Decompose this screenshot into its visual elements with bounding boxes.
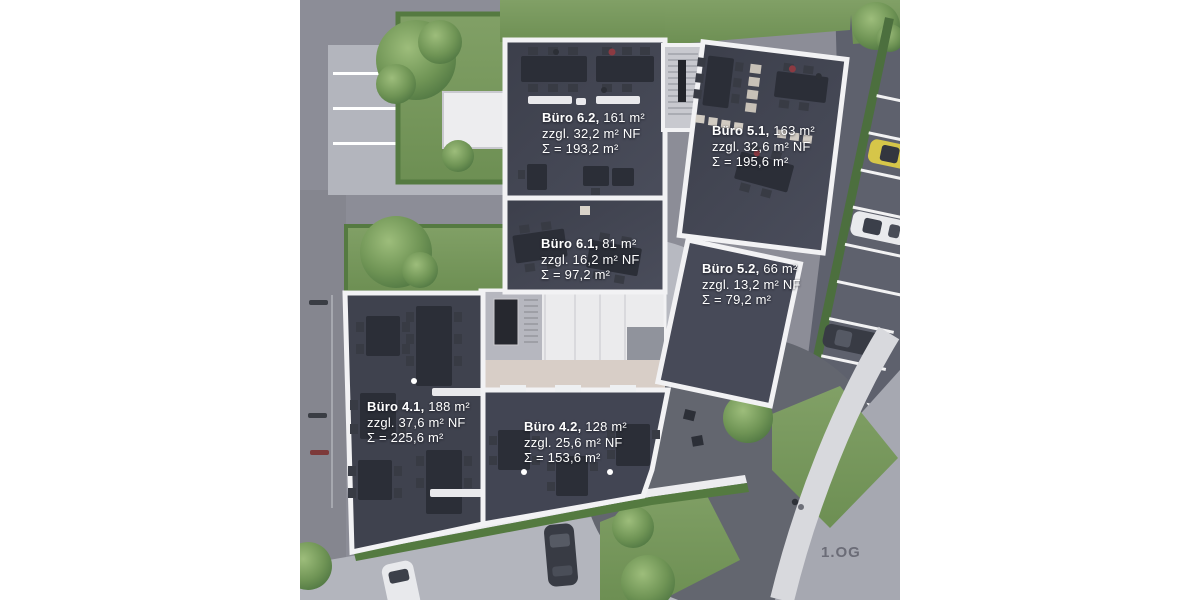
bench [691,435,704,447]
office-total: Σ = 193,2 m² [542,141,645,157]
office-addition: zzgl. 32,6 m² NF [712,139,815,155]
bicycle-icon [308,413,327,418]
office-name-area: Büro 4.2, 128 m² [524,419,627,435]
person-dot [553,49,559,55]
office-total: Σ = 153,6 m² [524,450,627,466]
office-addition: zzgl. 37,6 m² NF [367,415,470,431]
bicycle-icon [310,450,329,455]
office-addition: zzgl. 16,2 m² NF [541,252,640,268]
person-dot [792,499,798,505]
office-total: Σ = 97,2 m² [541,267,640,283]
lawn-upper-left [376,14,510,182]
skylight-dot [411,378,417,384]
office-name-area: Büro 4.1, 188 m² [367,399,470,415]
office-label-buero-4-1: Büro 4.1, 188 m² zzgl. 37,6 m² NF Σ = 22… [367,399,470,446]
car-dark [543,523,578,587]
office-addition: zzgl. 32,2 m² NF [542,126,645,142]
site-plan-scene [300,0,900,600]
shed-roof [443,92,509,148]
lawn-mid-left [346,216,508,292]
bush-icon [442,140,474,172]
office-label-buero-6-2: Büro 6.2, 161 m² zzgl. 32,2 m² NF Σ = 19… [542,110,645,157]
building-core [478,290,665,390]
office-label-buero-6-1: Büro 6.1, 81 m² zzgl. 16,2 m² NF Σ = 97,… [541,236,640,283]
office-name-area: Büro 6.1, 81 m² [541,236,640,252]
floor-plan-rendering: Büro 6.2, 161 m² zzgl. 32,2 m² NF Σ = 19… [0,0,1200,600]
bicycle-icon [309,300,328,305]
office-total: Σ = 225,6 m² [367,430,470,446]
office-label-buero-4-2: Büro 4.2, 128 m² zzgl. 25,6 m² NF Σ = 15… [524,419,627,466]
office-addition: zzgl. 25,6 m² NF [524,435,627,451]
floor-level-label: 1.OG [821,544,861,561]
office-total: Σ = 195,6 m² [712,154,815,170]
office-label-buero-5-2: Büro 5.2, 66 m² zzgl. 13,2 m² NF Σ = 79,… [702,261,801,308]
elevator-shaft [494,299,518,345]
skylight-dot [607,469,613,475]
office-label-buero-5-1: Büro 5.1, 163 m² zzgl. 32,6 m² NF Σ = 19… [712,123,815,170]
utility-room [627,327,664,360]
office-name-area: Büro 5.2, 66 m² [702,261,801,277]
person-dot [601,87,607,93]
bush-icon [612,506,654,548]
person-dot [798,504,804,510]
stair-rail [678,60,686,102]
skylight-square [580,206,590,215]
office-name-area: Büro 5.1, 163 m² [712,123,815,139]
office-total: Σ = 79,2 m² [702,292,801,308]
office-addition: zzgl. 13,2 m² NF [702,277,801,293]
window-marks [500,385,636,392]
office-name-area: Büro 6.2, 161 m² [542,110,645,126]
person-dot [609,49,616,56]
skylight-dot [521,469,527,475]
